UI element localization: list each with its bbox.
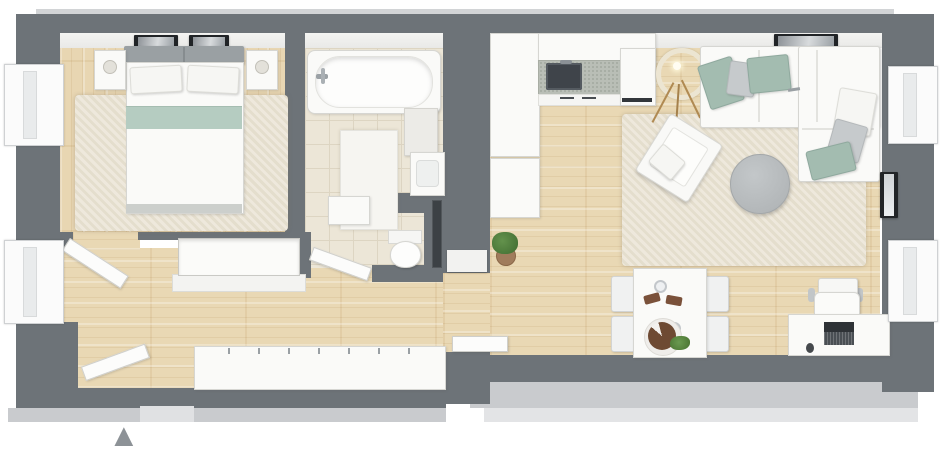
wall-bedroom-bathroom [285, 33, 305, 246]
window-living-1 [888, 66, 938, 144]
kitchen-tall-cabinet [490, 33, 540, 157]
cabinet-handle-right [582, 97, 596, 99]
window-glass [23, 71, 37, 139]
bed-footboard [126, 204, 242, 213]
photo-image [884, 174, 894, 216]
window-glass [903, 73, 917, 137]
bathroom-cabinet [328, 196, 370, 225]
round-pouf [730, 154, 790, 214]
sink-faucet-icon [560, 60, 572, 64]
window-glass [903, 247, 917, 315]
built-in-closet [178, 238, 300, 276]
toilet-bowl [390, 241, 421, 268]
fascia-bottom-living-outer [484, 408, 918, 422]
wall-bottom-living [478, 355, 914, 382]
entrance-threshold [140, 406, 194, 422]
window-hallway [4, 240, 64, 324]
glass-1 [654, 280, 667, 293]
wall-photo-frame [880, 172, 898, 218]
window-glass [23, 247, 37, 317]
fascia-bottom-living [470, 382, 918, 408]
closet-front-face [172, 274, 306, 292]
art-image [138, 37, 174, 46]
entrance-arrow-icon: ▲ [108, 420, 140, 450]
tub-faucet-pipe [321, 68, 325, 84]
lamp-bulb [673, 62, 681, 70]
bed-pillow-right [186, 65, 239, 95]
fascia-bottom-hall [8, 408, 446, 422]
kitchen-cabinet-front [538, 94, 624, 106]
computer-mouse-icon [806, 343, 814, 353]
kitchen-sink [546, 63, 582, 90]
wall-bottom-hall [16, 388, 446, 408]
bed-sage-band [126, 106, 242, 129]
floor-plan: ▲ [0, 0, 950, 464]
sofa-seam-2 [816, 50, 818, 122]
kitchen-lower-cabinet [490, 158, 540, 218]
wall-top [38, 14, 894, 33]
towel-radiator [432, 200, 442, 268]
mirror-cabinet [404, 108, 438, 156]
table-plant-icon [670, 336, 690, 350]
window-living-2 [888, 240, 938, 322]
table-lamp-right [255, 60, 269, 74]
sofa-pillow-sage-2 [746, 54, 792, 94]
laptop-screen [824, 322, 854, 332]
bed-pillow-left [129, 65, 182, 95]
bathtub-basin [315, 56, 433, 108]
headboard-seam [183, 47, 185, 63]
washbasin-bowl [416, 160, 439, 187]
window-bedroom [4, 64, 64, 146]
laptop-keyboard [824, 332, 854, 345]
appliance-handle [622, 98, 652, 102]
wardrobe-handles [200, 348, 438, 354]
art-image [193, 37, 225, 46]
wall-end-cap [447, 250, 487, 272]
potted-plant-icon [492, 232, 518, 254]
living-room-door [452, 336, 508, 352]
cabinet-handle-left [560, 97, 574, 99]
table-lamp-left [103, 60, 117, 74]
wall-bathroom-living [443, 33, 490, 273]
